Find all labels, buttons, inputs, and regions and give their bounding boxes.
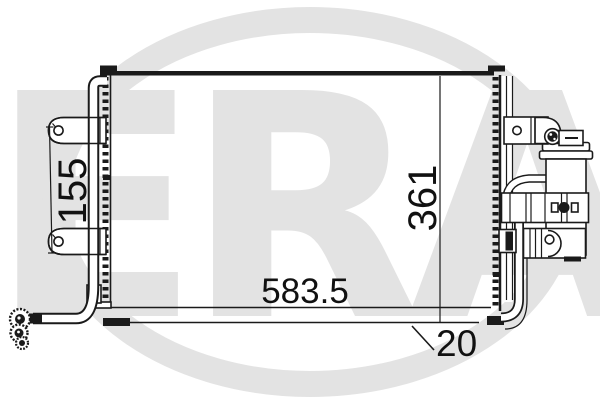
left-weld-nub — [103, 175, 111, 180]
charge-valve-core — [547, 131, 557, 141]
lower-block-foot-tab — [564, 257, 581, 262]
channel-clamp-slot — [506, 232, 514, 251]
fitting-highlight-1 — [17, 316, 20, 319]
service-valve-cap — [559, 202, 570, 213]
dim-20-label: 20 — [436, 323, 477, 364]
condenser-technical-drawing: ERA — [0, 0, 600, 400]
drawing-svg: ERA — [0, 0, 600, 400]
fitting-core-bottom — [19, 340, 25, 346]
dim-155-label: 155 — [51, 158, 95, 225]
valve-tab-left — [552, 203, 559, 212]
drier-flange-ring — [540, 151, 593, 159]
fitting-highlight-2 — [17, 331, 20, 334]
charge-valve-glint-1 — [549, 133, 552, 136]
dim-361-label: 361 — [401, 165, 445, 232]
dim-583-label: 583.5 — [261, 272, 349, 311]
right-weld-nub — [493, 272, 501, 277]
valve-tab-right — [572, 203, 579, 212]
top-left-mount-tab — [100, 66, 117, 72]
top-right-mount-tab — [488, 66, 505, 72]
bottom-left-tank-tab — [103, 318, 130, 326]
charge-valve-glint-2 — [553, 138, 555, 140]
upper-manifold-block — [502, 193, 589, 223]
core-top-bar — [100, 71, 494, 76]
